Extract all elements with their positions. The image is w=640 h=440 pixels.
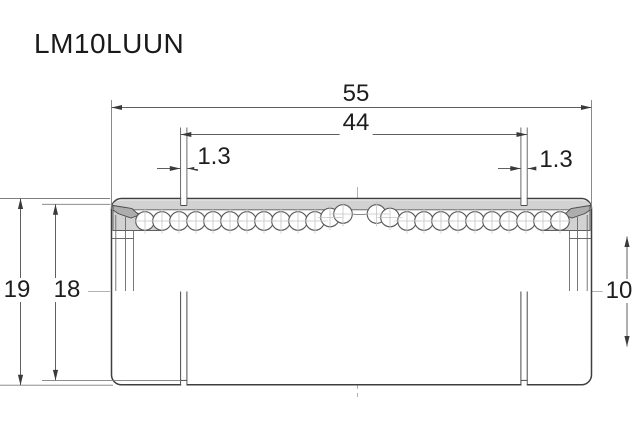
dim-overall-length-label: 55 xyxy=(340,82,373,106)
dim-groove-diameter-label: 18 xyxy=(51,278,84,302)
bearing-body xyxy=(112,194,592,387)
dim-between-grooves-label: 44 xyxy=(340,111,373,135)
dim-groove-width-left-label: 1.3 xyxy=(194,145,233,169)
bearing-section-drawing xyxy=(0,0,640,440)
dim-outer-diameter-label: 19 xyxy=(1,278,34,302)
drawing-canvas: LM10LUUN 55 44 1.3 1.3 19 18 10 xyxy=(0,0,640,440)
part-number-title: LM10LUUN xyxy=(34,28,184,60)
dim-bore-diameter-label: 10 xyxy=(603,279,636,303)
dim-groove-width-right-label: 1.3 xyxy=(536,148,575,172)
